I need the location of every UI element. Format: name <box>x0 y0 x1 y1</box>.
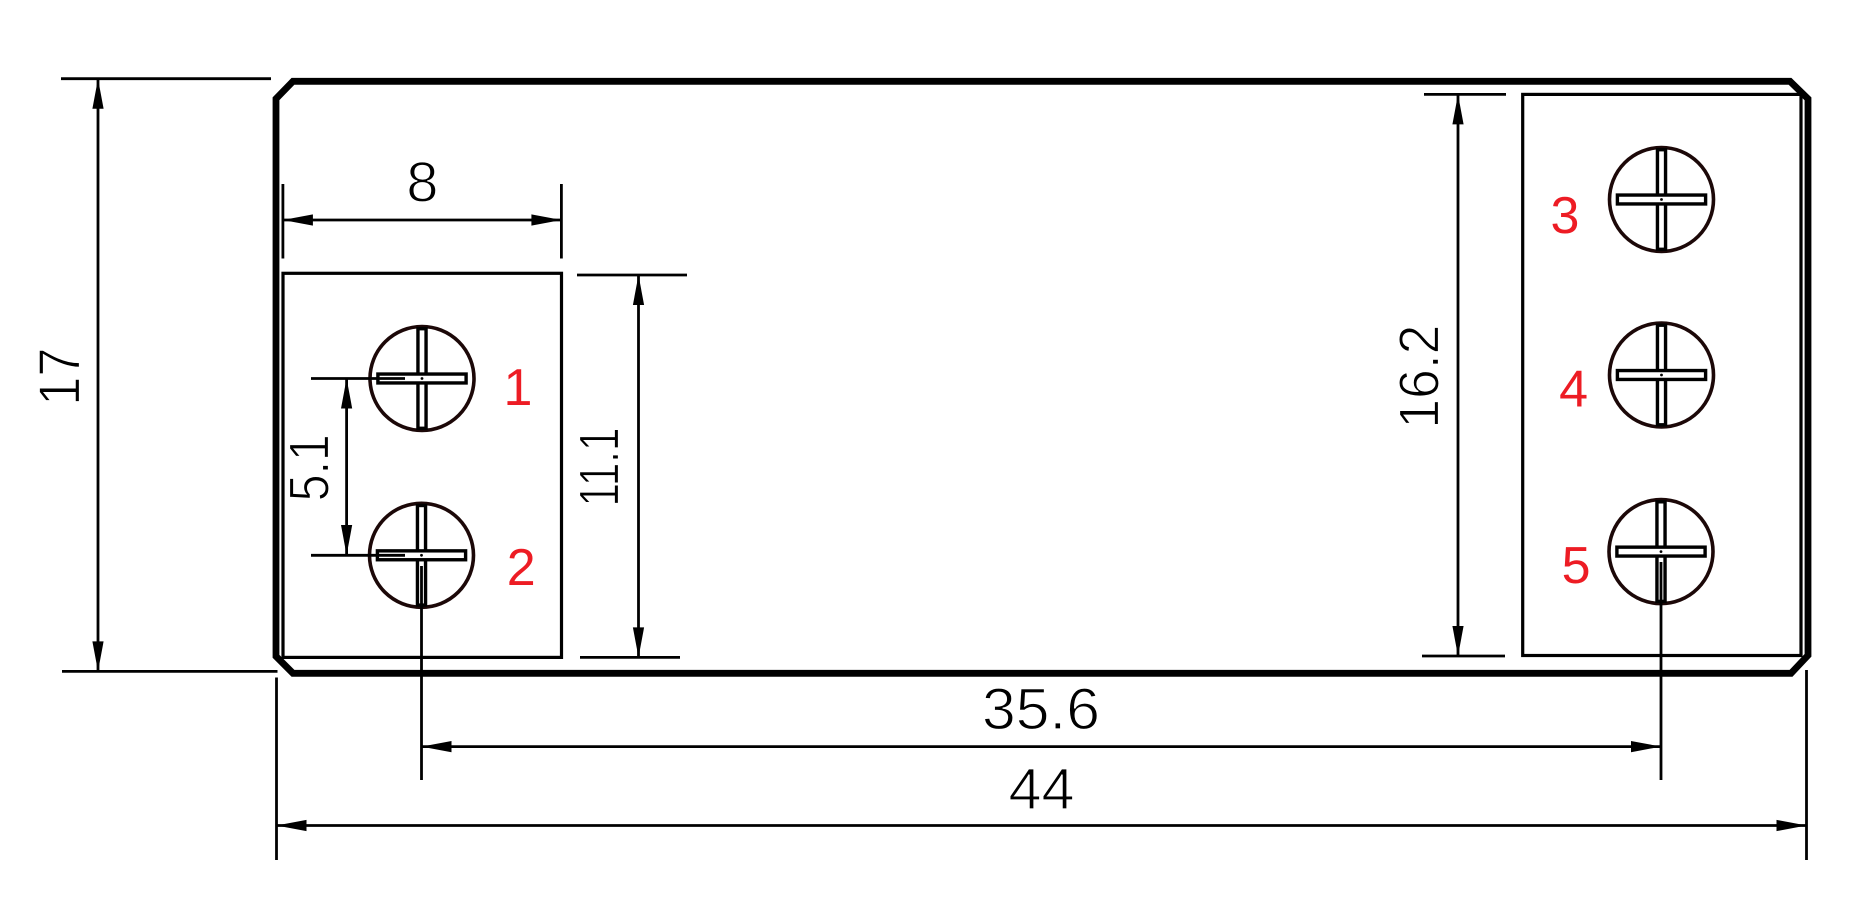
svg-text:44: 44 <box>1009 757 1075 822</box>
svg-text:11.1: 11.1 <box>567 428 631 507</box>
svg-text:17: 17 <box>28 348 93 406</box>
svg-text:35.6: 35.6 <box>982 677 1100 742</box>
svg-text:5: 5 <box>1562 537 1591 595</box>
svg-text:3: 3 <box>1550 187 1579 245</box>
svg-text:2: 2 <box>507 539 536 597</box>
svg-text:5.1: 5.1 <box>278 434 342 501</box>
svg-text:16.2: 16.2 <box>1388 325 1452 429</box>
svg-text:1: 1 <box>503 359 532 417</box>
svg-text:4: 4 <box>1559 361 1588 419</box>
svg-text:8: 8 <box>406 151 438 215</box>
